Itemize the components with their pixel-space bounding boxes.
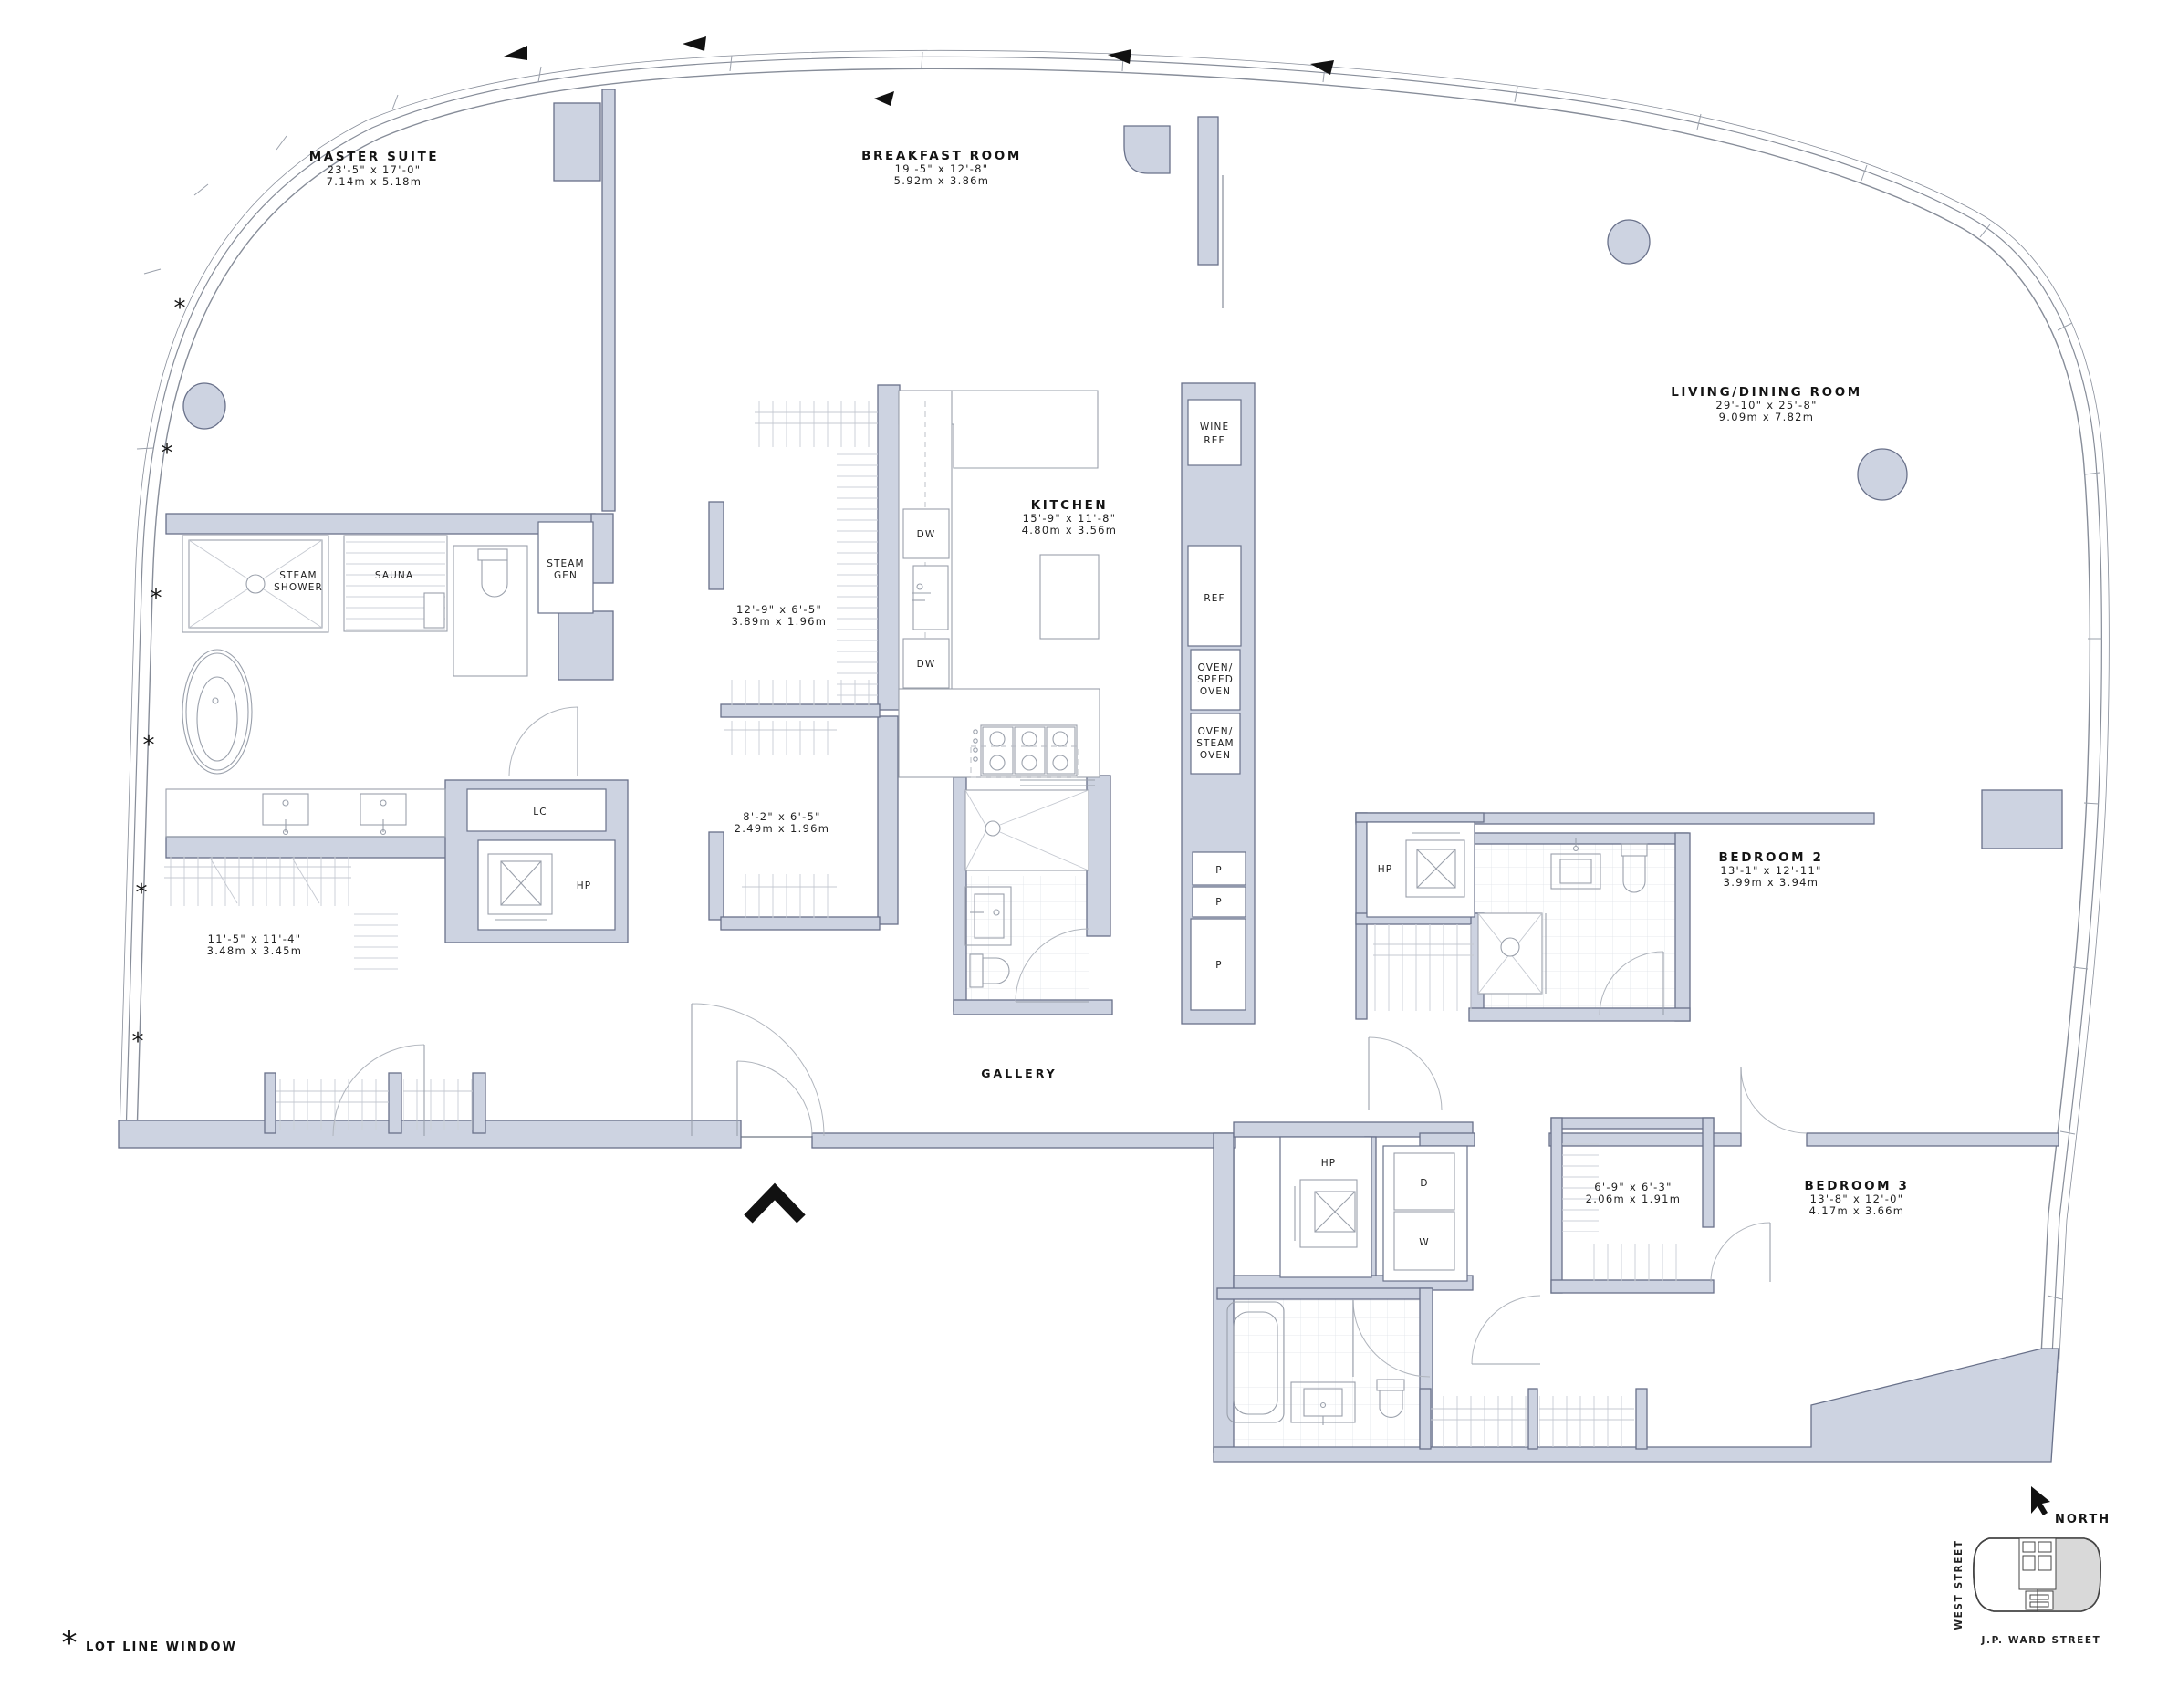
label-wine-ref: REF <box>1204 435 1225 446</box>
kitchen-counter-bottom <box>899 689 1100 777</box>
key-plan: NORTH WEST STREET J.P. WARD STREET <box>1954 1486 2111 1646</box>
lot-line-asterisk: * <box>136 880 148 907</box>
entry-arrow-icon <box>748 1192 801 1219</box>
floorplan-page: * * * * * * <box>0 0 2168 1708</box>
lot-line-asterisk-legend: * <box>62 1625 78 1661</box>
label-hp-master: HP <box>577 880 591 891</box>
label-oven-speed: SPEED <box>1197 674 1234 685</box>
label-steam-shower: STEAM <box>279 570 317 581</box>
lot-line-asterisk: * <box>151 585 162 612</box>
kitchen-fixtures <box>899 391 1100 777</box>
label-living-imperial: 29'-10" x 25'-8" <box>1715 399 1817 411</box>
label-wic-imperial: 11'-5" x 11'-4" <box>208 932 302 945</box>
wine-ref-box <box>1188 400 1241 465</box>
label-closet2-imperial: 8'-2" x 6'-5" <box>743 810 820 823</box>
shaft-block <box>554 103 600 181</box>
north-arrow-icon <box>2031 1486 2050 1515</box>
label-breakfast-metric: 5.92m x 3.86m <box>894 174 990 187</box>
label-oven-speed: OVEN <box>1200 686 1231 697</box>
label-oven-steam: STEAM <box>1196 738 1234 749</box>
label-master-suite-imperial: 23'-5" x 17'-0" <box>328 163 422 176</box>
label-bedroom2: BEDROOM 2 <box>1719 850 1824 865</box>
label-closet1-metric: 3.89m x 1.96m <box>732 615 828 628</box>
label-bedroom2-imperial: 13'-1" x 12'-11" <box>1720 864 1821 877</box>
label-wine-ref: WINE <box>1200 422 1229 432</box>
label-bedroom2-metric: 3.99m x 3.94m <box>1724 876 1819 889</box>
label-bed3closet-metric: 2.06m x 1.91m <box>1586 1192 1682 1205</box>
label-dw: DW <box>917 529 936 540</box>
label-oven-steam: OVEN/ <box>1198 726 1234 737</box>
label-master-suite: MASTER SUITE <box>309 150 439 164</box>
label-ref: REF <box>1204 593 1225 604</box>
label-steam-shower: SHOWER <box>274 582 323 593</box>
label-bedroom3-imperial: 13'-8" x 12'-0" <box>1810 1192 1904 1205</box>
label-lot-line-window: LOT LINE WINDOW <box>86 1640 237 1654</box>
label-living-dining: LIVING/DINING ROOM <box>1671 385 1862 400</box>
label-master-suite-metric: 7.14m x 5.18m <box>327 175 422 188</box>
label-lc: LC <box>533 807 547 818</box>
label-bedroom3-metric: 4.17m x 3.66m <box>1809 1204 1905 1217</box>
label-north: NORTH <box>2055 1513 2111 1526</box>
column <box>1124 126 1170 173</box>
label-west-street: WEST STREET <box>1954 1539 1965 1630</box>
label-closet2-metric: 2.49m x 1.96m <box>735 822 830 835</box>
shower-drain <box>985 821 1000 836</box>
floorplan-drawing: * * * * * * <box>0 0 2168 1708</box>
column <box>1858 449 1907 500</box>
label-steam-gen: GEN <box>554 570 578 581</box>
kitchen-island <box>1040 555 1099 639</box>
label-dryer: D <box>1420 1178 1428 1189</box>
kitchen-sink <box>913 566 948 630</box>
shower-drain <box>246 575 265 593</box>
lot-line-asterisk: * <box>132 1028 144 1056</box>
toilet <box>478 549 507 560</box>
label-hp-lower: HP <box>1321 1158 1336 1169</box>
label-bed3closet-imperial: 6'-9" x 6'-3" <box>1594 1181 1672 1193</box>
lot-line-asterisk: * <box>174 295 186 322</box>
label-closet1-imperial: 12'-9" x 6'-5" <box>736 603 822 616</box>
label-jp-ward-street: J.P. WARD STREET <box>1981 1635 2101 1646</box>
label-dw: DW <box>917 659 936 670</box>
label-gallery: GALLERY <box>981 1067 1057 1080</box>
label-washer: W <box>1419 1237 1429 1248</box>
label-pantry: P <box>1215 897 1222 908</box>
label-sauna: SAUNA <box>375 570 413 581</box>
label-bedroom3: BEDROOM 3 <box>1805 1179 1910 1193</box>
facade-markers <box>504 36 1334 106</box>
label-oven-speed: OVEN/ <box>1198 662 1234 673</box>
label-oven-steam: OVEN <box>1200 750 1231 761</box>
label-pantry: P <box>1215 960 1222 971</box>
label-kitchen: KITCHEN <box>1031 498 1109 513</box>
shower-drain <box>1501 938 1519 956</box>
sauna-bench <box>424 593 444 628</box>
label-kitchen-imperial: 15'-9" x 11'-8" <box>1023 512 1117 525</box>
label-breakfast-room: BREAKFAST ROOM <box>861 149 1022 163</box>
label-breakfast-imperial: 19'-5" x 12'-8" <box>895 162 989 175</box>
label-wic-metric: 3.48m x 3.45m <box>207 944 303 957</box>
shower-pan <box>965 790 1089 870</box>
column <box>1608 220 1650 264</box>
label-steam-gen: STEAM <box>547 558 584 569</box>
label-living-metric: 9.09m x 7.82m <box>1719 411 1815 423</box>
lot-line-asterisk: * <box>162 440 173 467</box>
legend-note: * LOT LINE WINDOW <box>62 1625 237 1661</box>
label-hp-bed2: HP <box>1378 864 1392 875</box>
label-kitchen-metric: 4.80m x 3.56m <box>1022 524 1118 536</box>
label-pantry: P <box>1215 865 1222 876</box>
column <box>183 383 225 429</box>
lot-line-asterisk: * <box>143 732 155 759</box>
